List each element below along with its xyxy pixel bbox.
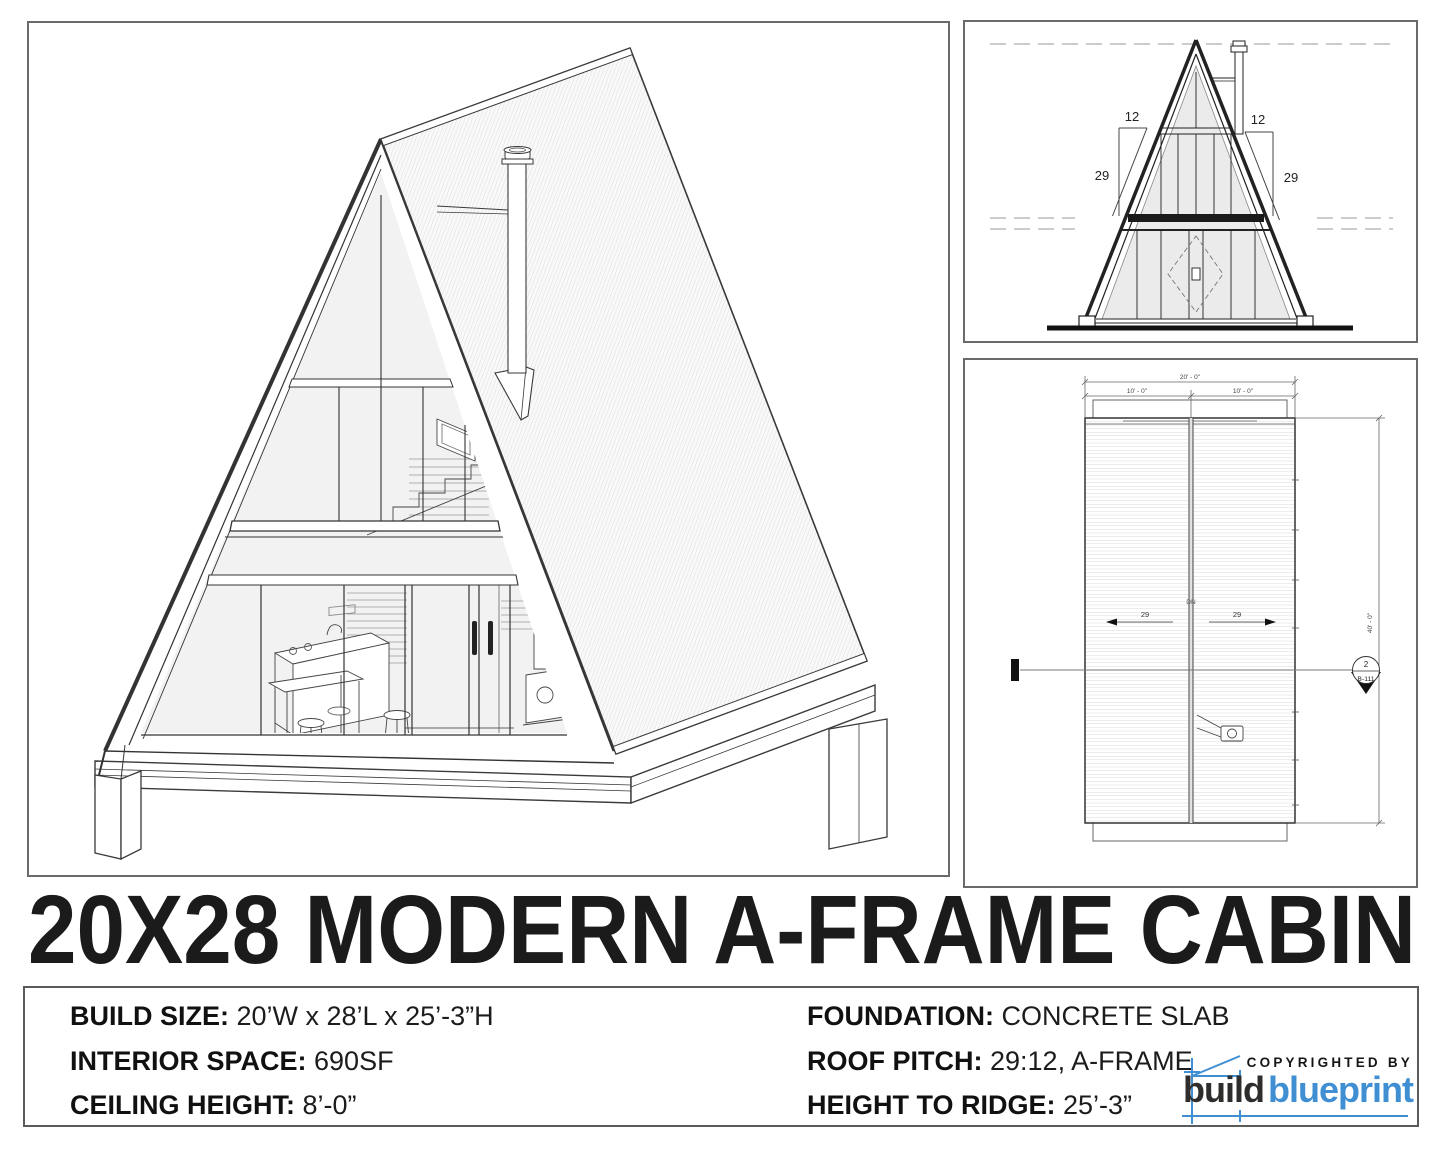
perspective-view-panel (27, 21, 950, 877)
spec-interior-space: INTERIOR SPACE: 690SF (70, 1045, 394, 1077)
spec-ceiling-height-label: CEILING HEIGHT: (70, 1090, 295, 1120)
elevation-view-panel: 12 12 29 29 (963, 20, 1418, 343)
spec-foundation: FOUNDATION: CONCRETE SLAB (807, 1000, 1230, 1032)
section-sheet-number: B-111 (1357, 676, 1374, 683)
spec-height-to-ridge-label: HEIGHT TO RIDGE: (807, 1090, 1056, 1120)
spec-height-to-ridge-value: 25’-3” (1056, 1090, 1133, 1120)
brand-build: build (1183, 1069, 1264, 1110)
pitch-run-right-label: 12 (1251, 112, 1265, 127)
section-detail-number: 2 (1364, 660, 1369, 669)
brand-wordmark: buildblueprint (1183, 1069, 1413, 1111)
spec-roof-pitch-label: ROOF PITCH: (807, 1046, 983, 1076)
spec-build-size: BUILD SIZE: 20’W x 28’L x 25’-3”H (70, 1000, 494, 1032)
spec-build-size-label: BUILD SIZE: (70, 1001, 229, 1031)
spec-height-to-ridge: HEIGHT TO RIDGE: 25’-3” (807, 1089, 1132, 1121)
spec-foundation-value: CONCRETE SLAB (994, 1001, 1230, 1031)
sheet-title-text: 20X28 MODERN A-FRAME CABIN (28, 888, 1416, 974)
brand-blueprint: blueprint (1268, 1069, 1413, 1110)
blueprint-sheet: 12 12 29 29 (0, 0, 1445, 1149)
roof-plan-drawing: 20' - 0" 10' - 0" 10' - 0" 40' - 0" 29 2… (965, 360, 1416, 886)
spec-build-size-value: 20’W x 28’L x 25’-3”H (229, 1001, 494, 1031)
spec-roof-pitch: ROOF PITCH: 29:12, A-FRAME (807, 1045, 1193, 1077)
slope-left-label: 29 (1141, 610, 1149, 619)
buildblueprint-logo: COPYRIGHTED BY buildblueprint (1182, 1052, 1414, 1126)
spec-ceiling-height: CEILING HEIGHT: 8’-0” (70, 1089, 357, 1121)
aframe-elevation-drawing: 12 12 29 29 (965, 22, 1416, 341)
spec-foundation-label: FOUNDATION: (807, 1001, 994, 1031)
aframe-perspective-drawing (29, 23, 948, 875)
spec-interior-space-label: INTERIOR SPACE: (70, 1046, 307, 1076)
down-label: DN (1186, 599, 1196, 606)
spec-interior-space-value: 690SF (307, 1046, 394, 1076)
pitch-rise-left-label: 29 (1095, 168, 1109, 183)
pitch-rise-right-label: 29 (1284, 170, 1298, 185)
spec-footer: BUILD SIZE: 20’W x 28’L x 25’-3”H INTERI… (23, 986, 1419, 1127)
spec-roof-pitch-value: 29:12, A-FRAME (983, 1046, 1193, 1076)
slope-right-label: 29 (1233, 610, 1241, 619)
plan-total-width-dim: 20' - 0" (1180, 374, 1201, 381)
plan-length-dim: 40' - 0" (1367, 612, 1374, 633)
pitch-run-left-label: 12 (1125, 109, 1139, 124)
roof-plan-panel: 20' - 0" 10' - 0" 10' - 0" 40' - 0" 29 2… (963, 358, 1418, 888)
plan-right-half-dim: 10' - 0" (1233, 388, 1254, 395)
copyrighted-by-text: COPYRIGHTED BY (1247, 1055, 1413, 1070)
plan-left-half-dim: 10' - 0" (1127, 388, 1148, 395)
sheet-title: 20X28 MODERN A-FRAME CABIN (27, 888, 1419, 974)
spec-ceiling-height-value: 8’-0” (295, 1090, 357, 1120)
